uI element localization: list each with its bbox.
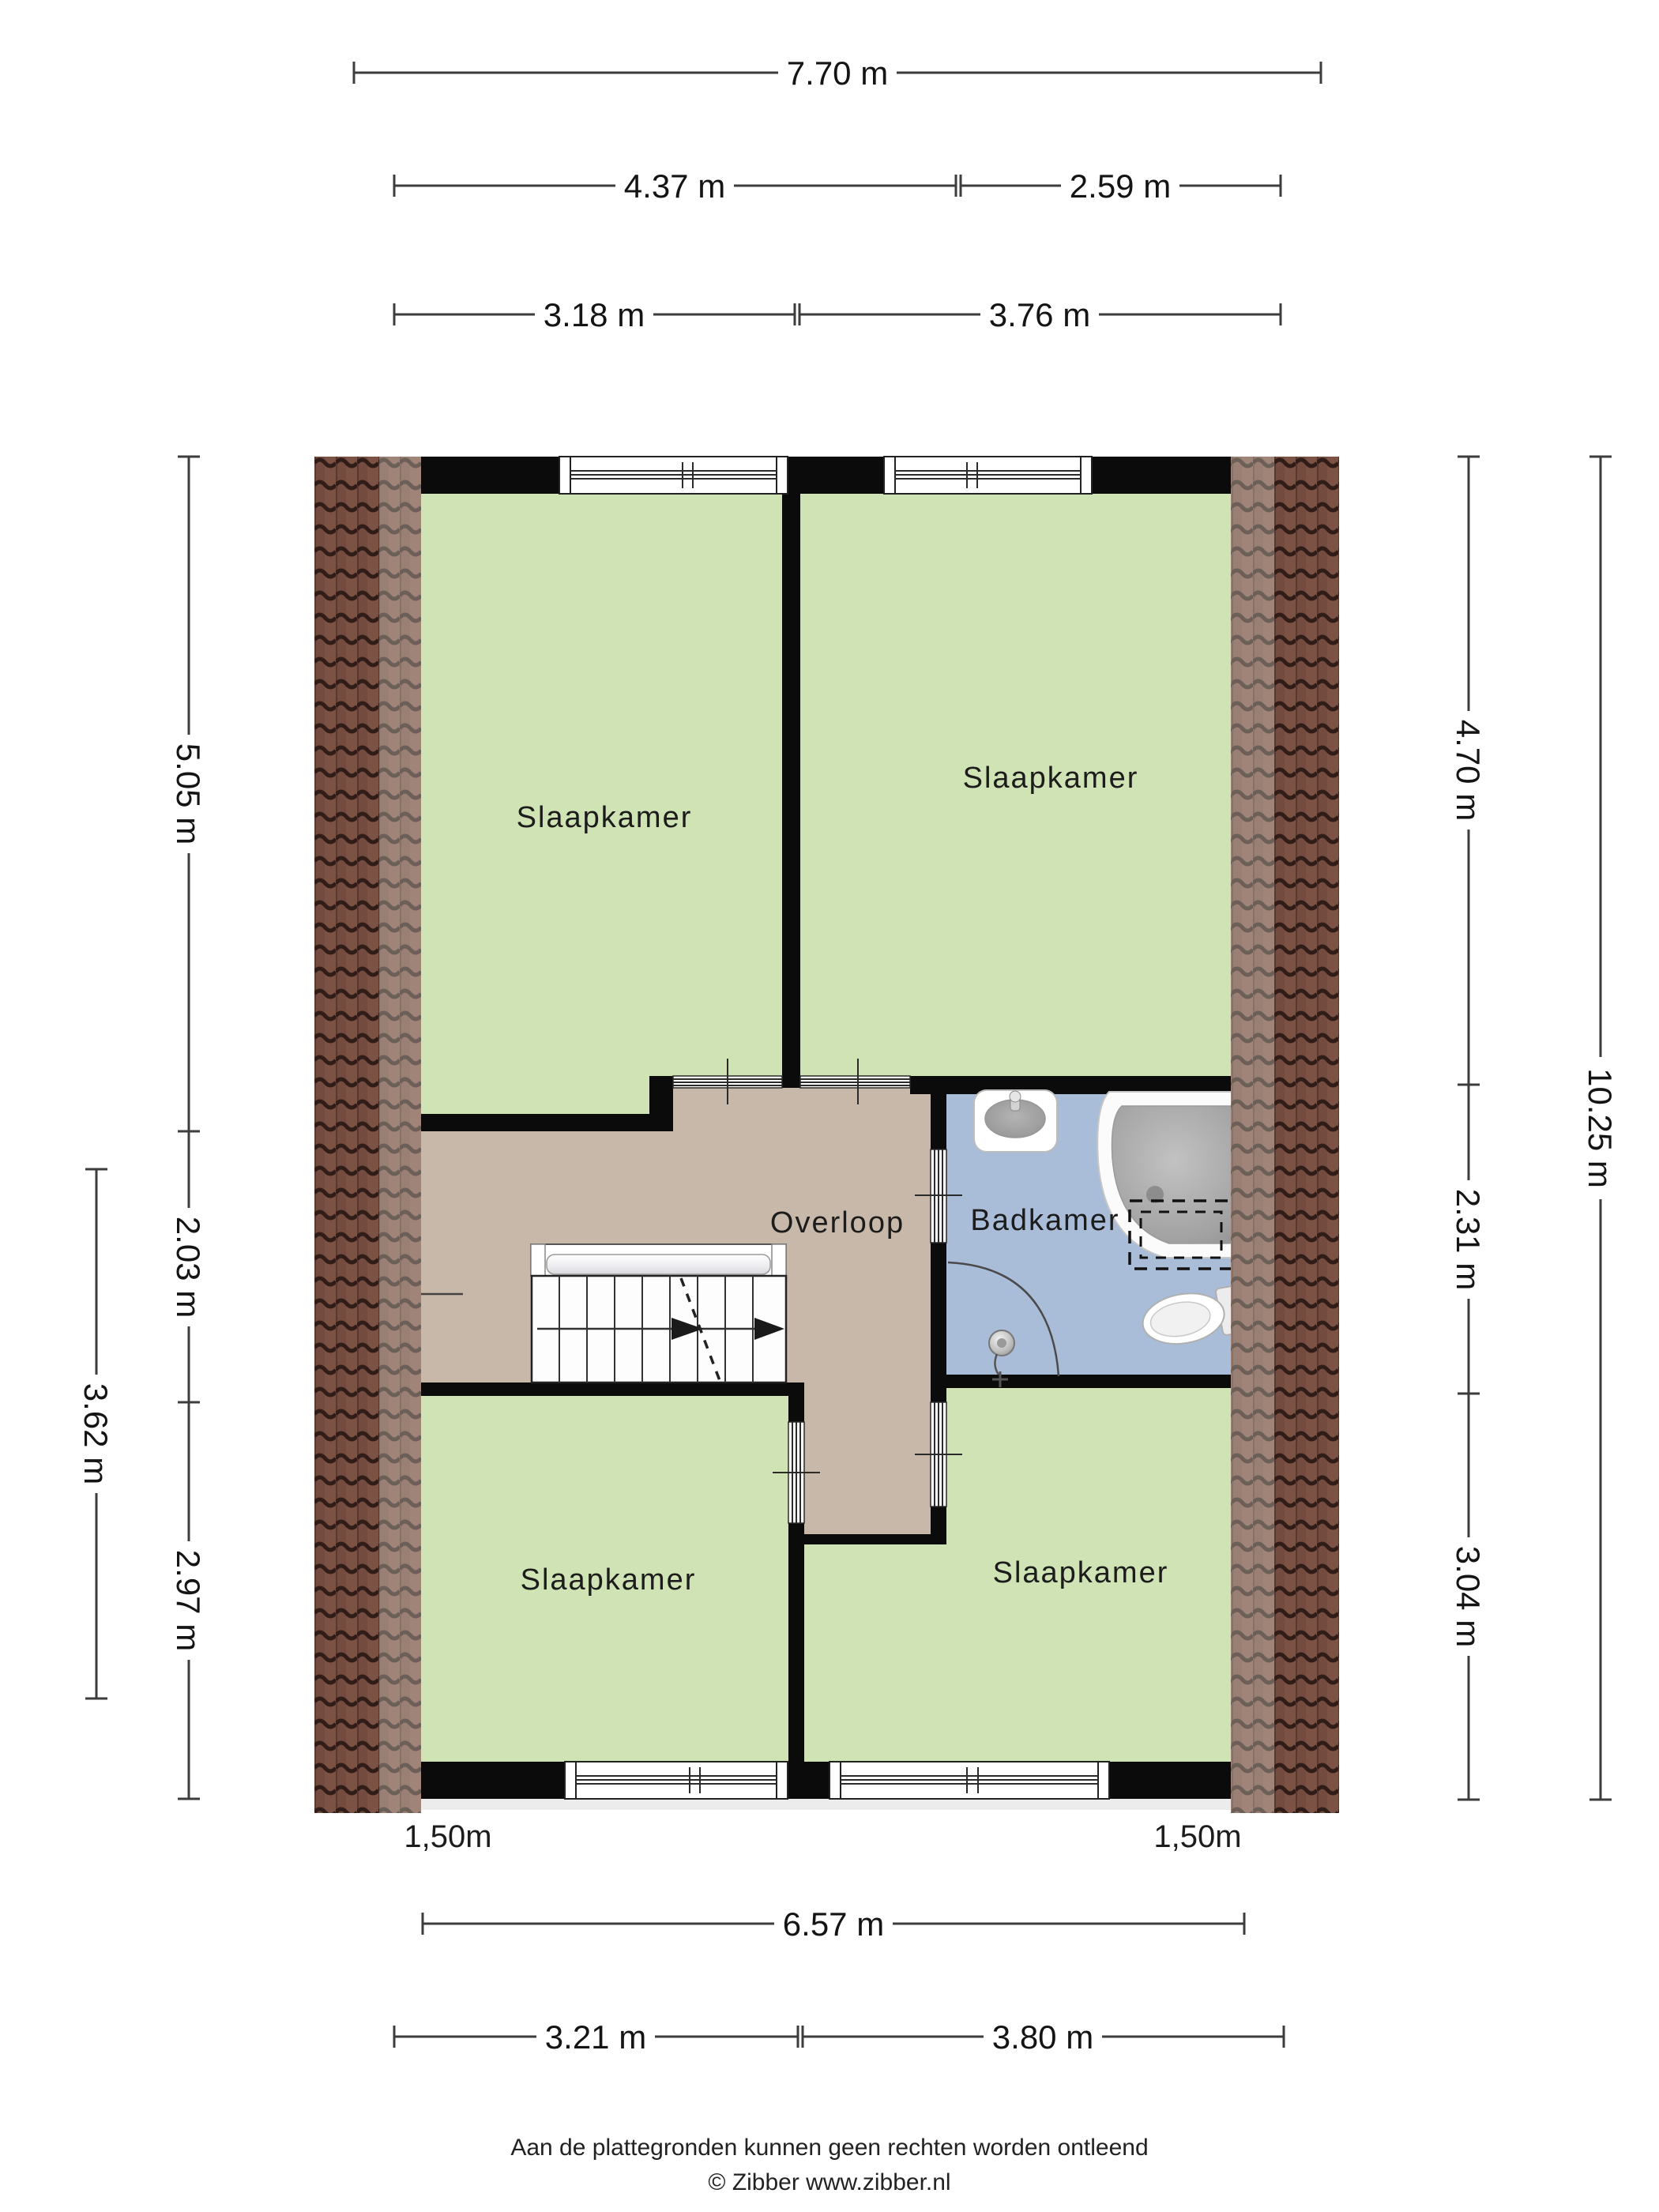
- svg-text:4.37 m: 4.37 m: [624, 167, 725, 205]
- wall-column-bottom: [796, 1534, 946, 1544]
- label-slaapkamer-bottom-right: Slaapkamer: [993, 1556, 1169, 1589]
- wall-topleft-bedroom-bottom: [421, 1114, 673, 1131]
- floorplan-page: Slaapkamer Slaapkamer Overloop Badkamer …: [0, 0, 1659, 2212]
- svg-text:3.04 m: 3.04 m: [1450, 1546, 1487, 1647]
- svg-text:10.25 m: 10.25 m: [1582, 1068, 1619, 1188]
- svg-text:6.57 m: 6.57 m: [783, 1905, 884, 1943]
- wall-badkamer-left-upper: [931, 1076, 946, 1149]
- window-bottom-left: [565, 1762, 788, 1799]
- wall-badkamer-left-lower: [931, 1243, 946, 1388]
- window-bottom-right: [829, 1762, 1109, 1799]
- footer-disclaimer: Aan de plattegronden kunnen geen rechten…: [510, 2135, 1148, 2161]
- svg-text:3.80 m: 3.80 m: [992, 2018, 1093, 2056]
- svg-text:3.18 m: 3.18 m: [544, 296, 645, 333]
- wall-step: [649, 1076, 673, 1131]
- wall-badkamer-bottom: [931, 1375, 1231, 1388]
- window-top-left: [559, 457, 788, 494]
- floorplan-drawing: Slaapkamer Slaapkamer Overloop Badkamer …: [0, 0, 1659, 2212]
- svg-text:3.62 m: 3.62 m: [77, 1383, 115, 1484]
- label-slaapkamer-top-left: Slaapkamer: [517, 801, 693, 834]
- wall-column-right-lower: [931, 1507, 946, 1534]
- label-slaapkamer-top-right: Slaapkamer: [963, 762, 1139, 795]
- label-overloop: Overloop: [770, 1206, 905, 1240]
- wall-divider-upper: [788, 1382, 804, 1422]
- footer-copyright: © Zibber www.zibber.nl: [708, 2169, 950, 2195]
- label-headroom-left: 1,50m: [404, 1819, 491, 1854]
- svg-text:2.97 m: 2.97 m: [170, 1550, 207, 1651]
- wall-bottomleft-bedroom-top: [421, 1382, 804, 1396]
- svg-text:5.05 m: 5.05 m: [170, 743, 207, 845]
- wall-top-exterior: [421, 457, 1231, 494]
- wall-partition-top-bedrooms: [782, 457, 800, 1088]
- label-badkamer: Badkamer: [970, 1204, 1119, 1237]
- svg-text:2.59 m: 2.59 m: [1070, 167, 1171, 205]
- svg-text:2.03 m: 2.03 m: [170, 1217, 207, 1318]
- roof-strip-left: [314, 457, 421, 1813]
- svg-text:3.76 m: 3.76 m: [989, 296, 1090, 333]
- staircase: [531, 1244, 786, 1382]
- svg-text:3.21 m: 3.21 m: [545, 2018, 646, 2056]
- wall-column-right-upper: [931, 1388, 946, 1402]
- label-headroom-right: 1,50m: [1153, 1819, 1241, 1854]
- svg-text:2.31 m: 2.31 m: [1450, 1189, 1487, 1290]
- label-slaapkamer-bottom-left: Slaapkamer: [521, 1563, 697, 1597]
- window-top-right: [884, 457, 1092, 494]
- sink-fixture: [974, 1090, 1057, 1152]
- wall-divider-lower: [788, 1523, 804, 1762]
- svg-text:4.70 m: 4.70 m: [1450, 720, 1487, 821]
- roof-strip-right: [1231, 457, 1339, 1813]
- svg-text:7.70 m: 7.70 m: [787, 55, 888, 92]
- building-shadow: [421, 1799, 1231, 1810]
